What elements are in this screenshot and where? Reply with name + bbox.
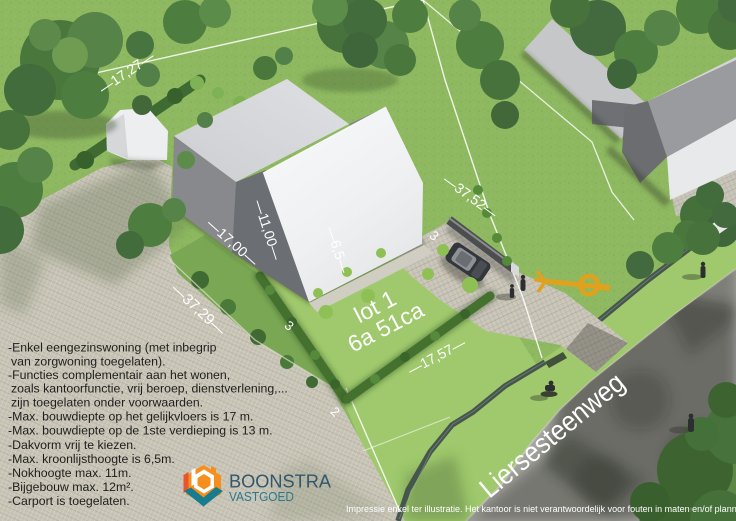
svg-text:-Enkel eengezinswoning (met in: -Enkel eengezinswoning (met inbegrip — [8, 341, 217, 355]
svg-text:-Carport is toegelaten.: -Carport is toegelaten. — [8, 494, 130, 508]
svg-text:zoals kantoorfunctie, vrij ber: zoals kantoorfunctie, vrij beroep, diens… — [11, 382, 288, 396]
svg-text:Impressie enkel ter illustrati: Impressie enkel ter illustratie. Het kan… — [346, 504, 736, 514]
svg-text:van zorgwoning toegelaten).: van zorgwoning toegelaten). — [11, 355, 166, 369]
svg-text:-Functies complementair aan he: -Functies complementair aan het wonen, — [8, 368, 230, 382]
svg-text:-Bijgebouw max. 12m².: -Bijgebouw max. 12m². — [8, 480, 134, 494]
svg-text:zijn toegelaten onder voorwaar: zijn toegelaten onder voorwaarden. — [11, 396, 203, 410]
svg-text:-Nokhoogte max. 11m.: -Nokhoogte max. 11m. — [8, 466, 131, 480]
svg-text:VASTGOED: VASTGOED — [229, 489, 294, 504]
svg-text:-Max. kroonlijsthoogte is 6,5m: -Max. kroonlijsthoogte is 6,5m. — [8, 452, 175, 466]
svg-text:-Max. bouwdiepte op het gelijk: -Max. bouwdiepte op het gelijkvloers is … — [8, 410, 253, 424]
svg-text:-Dakvorm vrij te kiezen.: -Dakvorm vrij te kiezen. — [8, 438, 136, 452]
svg-text:-Max. bouwdiepte op de 1ste ve: -Max. bouwdiepte op de 1ste verdieping i… — [8, 424, 273, 438]
